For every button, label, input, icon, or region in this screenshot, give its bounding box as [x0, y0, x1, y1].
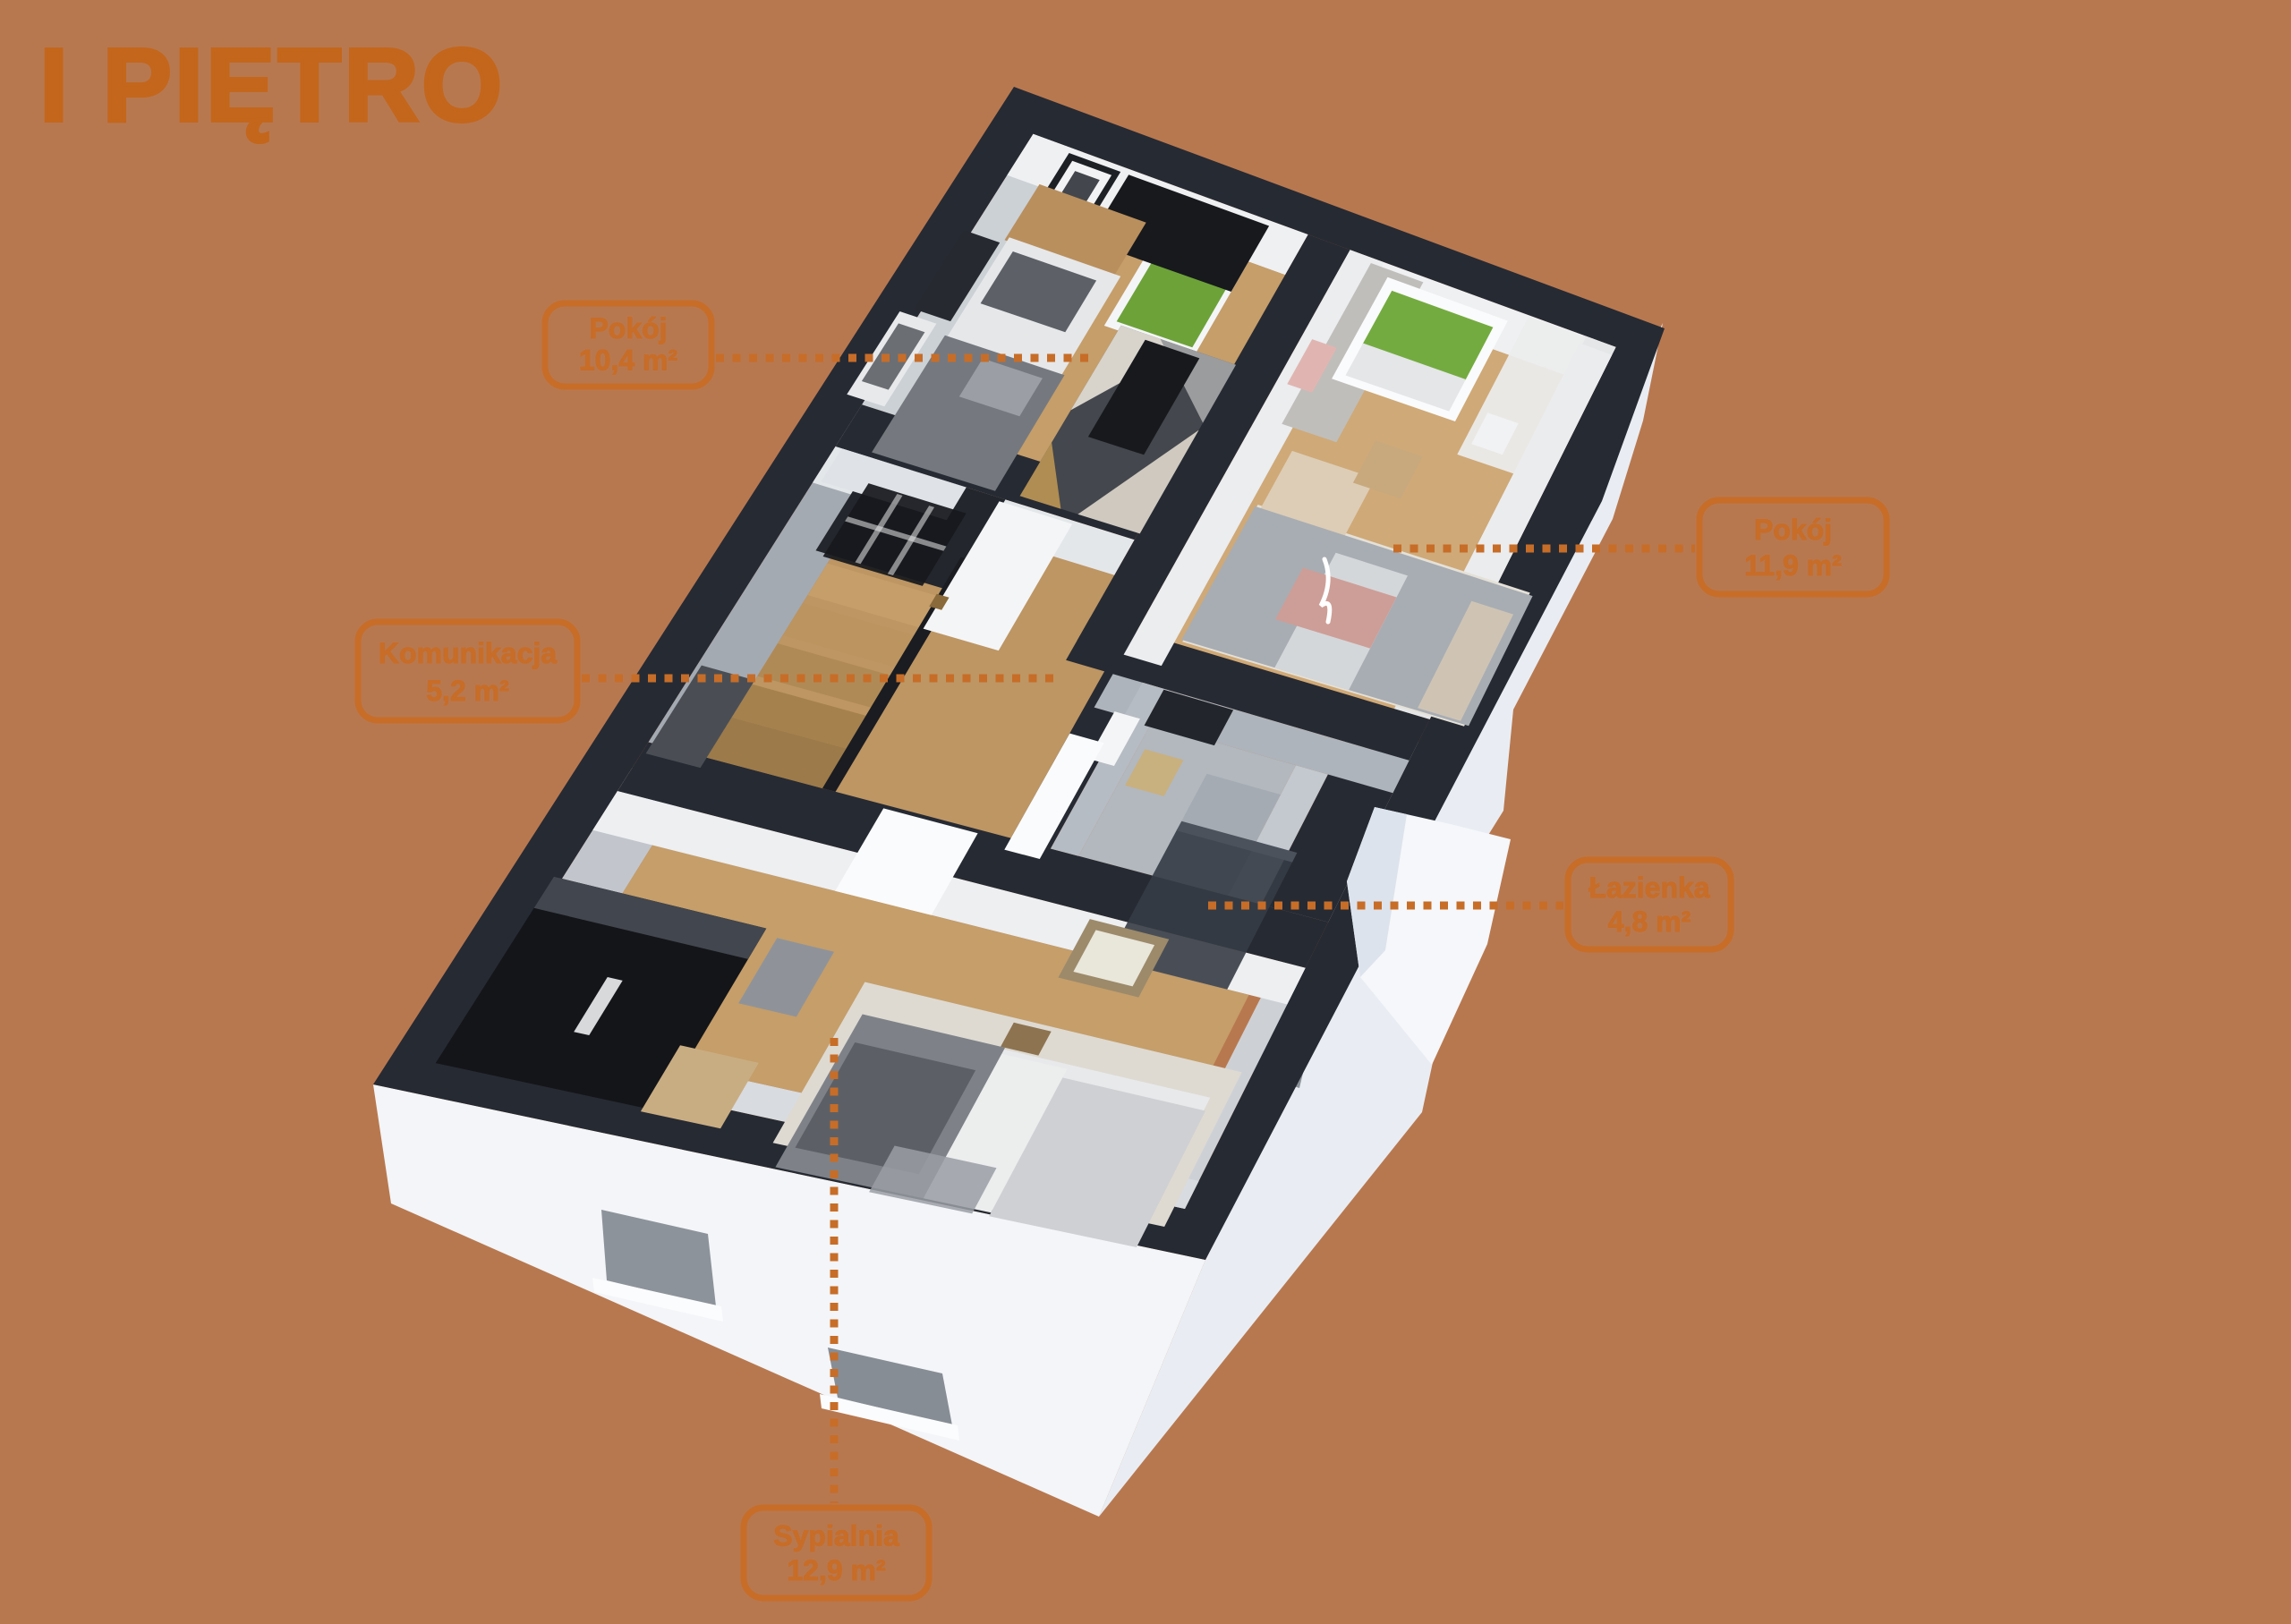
svg-text:Komunikacja: Komunikacja — [379, 637, 557, 669]
svg-text:I PIĘTRO: I PIĘTRO — [39, 27, 505, 143]
svg-text:10,4 m²: 10,4 m² — [579, 344, 677, 376]
svg-text:4,8 m²: 4,8 m² — [1608, 906, 1691, 938]
svg-text:5,2 m²: 5,2 m² — [426, 675, 508, 707]
svg-text:Łazienka: Łazienka — [1588, 872, 1709, 904]
svg-text:11,9 m²: 11,9 m² — [1744, 549, 1842, 582]
svg-text:Pokój: Pokój — [1754, 514, 1832, 546]
svg-text:12,9 m²: 12,9 m² — [787, 1554, 885, 1586]
svg-text:Sypialnia: Sypialnia — [773, 1519, 899, 1552]
svg-text:Pokój: Pokój — [589, 312, 667, 344]
